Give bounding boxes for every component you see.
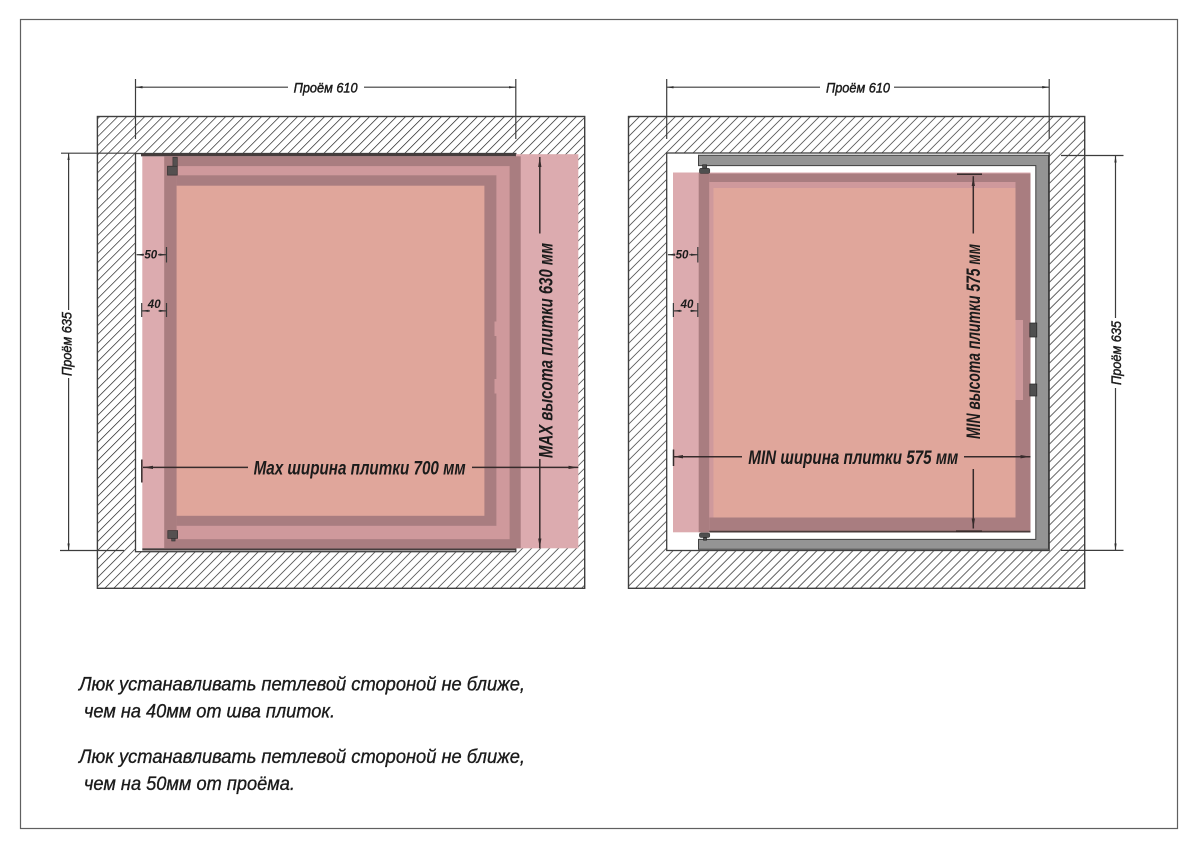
svg-text:50: 50 xyxy=(144,250,157,262)
svg-text:MAX высота плитки 630 мм: MAX высота плитки 630 мм xyxy=(536,243,558,458)
svg-text:Проём 610: Проём 610 xyxy=(826,80,890,96)
svg-text:MIN высота плитки 575 мм: MIN высота плитки 575 мм xyxy=(963,244,985,439)
svg-text:Люк устанавливать петлевой сто: Люк устанавливать петлевой стороной не б… xyxy=(77,674,525,696)
svg-text:Проём 610: Проём 610 xyxy=(294,80,358,96)
svg-text:Проём 635: Проём 635 xyxy=(1108,321,1124,385)
svg-text:Проём 635: Проём 635 xyxy=(59,312,75,376)
svg-text:Люк устанавливать петлевой сто: Люк устанавливать петлевой стороной не б… xyxy=(77,746,525,768)
svg-text:чем на 50мм от проёма.: чем на 50мм от проёма. xyxy=(84,773,295,795)
svg-text:MIN ширина плитки 575 мм: MIN ширина плитки 575 мм xyxy=(748,447,958,469)
svg-text:40: 40 xyxy=(680,299,694,311)
svg-text:40: 40 xyxy=(147,299,161,311)
svg-text:чем на 40мм от шва плиток.: чем на 40мм от шва плиток. xyxy=(84,701,335,723)
svg-text:50: 50 xyxy=(676,250,689,262)
svg-text:Max ширина плитки 700 мм: Max ширина плитки 700 мм xyxy=(254,458,466,480)
